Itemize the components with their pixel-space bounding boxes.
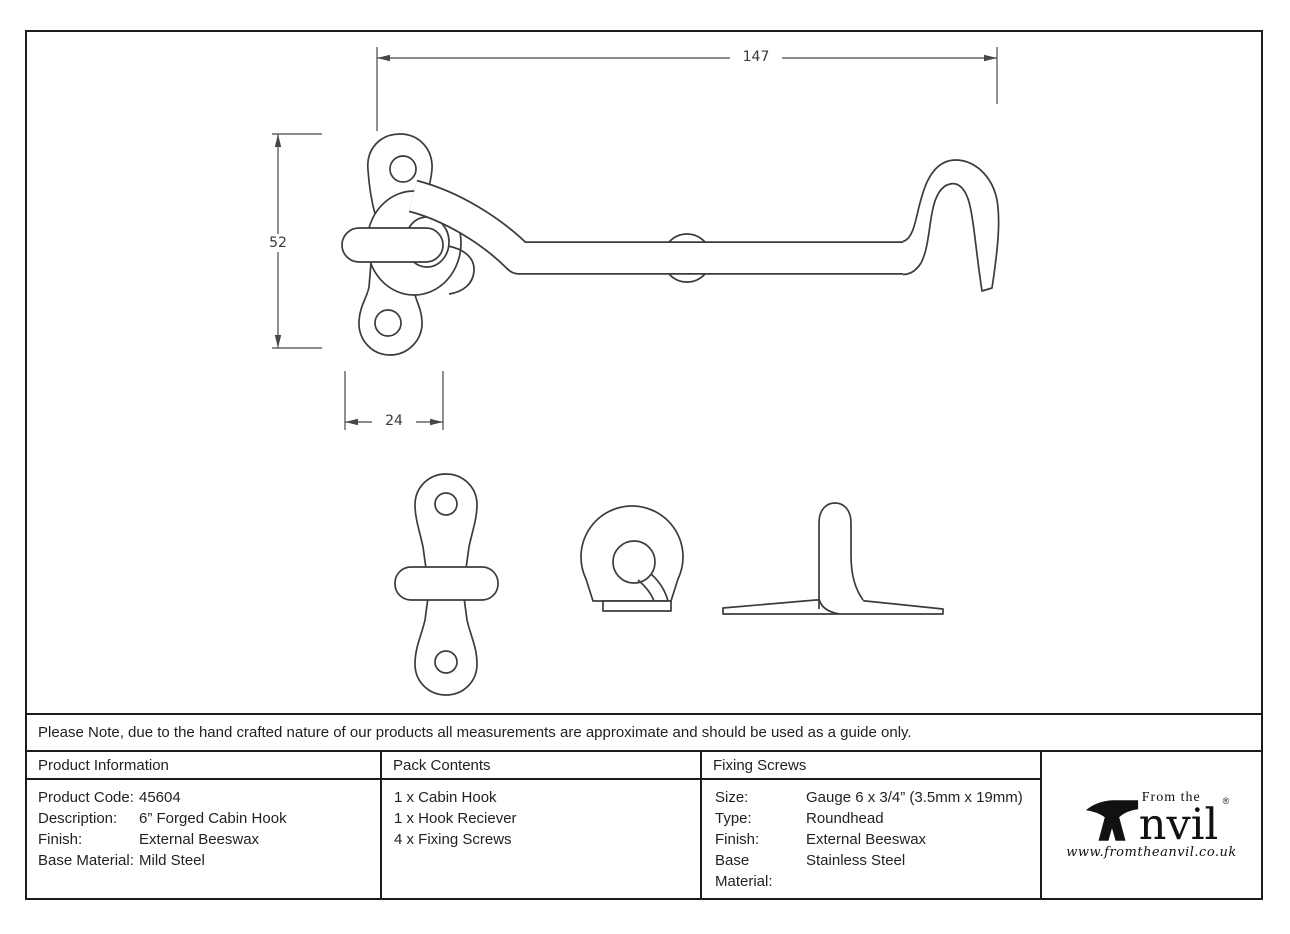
- row-label: Finish:: [702, 829, 806, 850]
- dim-label-height: 52: [256, 234, 300, 252]
- row-value: Roundhead: [806, 808, 1040, 829]
- product-information-header: Product Information: [27, 752, 380, 780]
- detail-view-eye: [581, 506, 683, 611]
- row-value: 6” Forged Cabin Hook: [139, 808, 380, 829]
- note-text: Please Note, due to the hand crafted nat…: [38, 724, 912, 741]
- table-row: Size: Gauge 6 x 3/4” (3.5mm x 19mm): [702, 787, 1040, 808]
- row-label: Base Material:: [702, 850, 806, 892]
- cabin-hook-drawing: [27, 32, 1261, 713]
- detail-view-plate: [395, 474, 498, 695]
- sheet-frame: 147 52 24 Please Note, due to the hand c…: [25, 30, 1263, 900]
- row-label: Product Code:: [27, 787, 139, 808]
- list-item: 4 x Fixing Screws: [382, 829, 700, 850]
- dim-label-length: 147: [730, 48, 782, 66]
- dimension-147: [377, 47, 997, 131]
- hook-rod-fill: [413, 196, 903, 258]
- row-value: External Beeswax: [806, 829, 1040, 850]
- row-label: Description:: [27, 808, 139, 829]
- logo-prefix: From the: [1142, 790, 1201, 806]
- info-table: Product Information Product Code: 45604 …: [27, 750, 1261, 898]
- table-row: Type: Roundhead: [702, 808, 1040, 829]
- row-label: Base Material:: [27, 850, 139, 871]
- brand-column: From the nvil ® www.fromtheanvil.co.uk: [1040, 752, 1261, 898]
- row-value: Gauge 6 x 3/4” (3.5mm x 19mm): [806, 787, 1040, 808]
- hook-tip: [903, 160, 999, 291]
- row-value: External Beeswax: [139, 829, 380, 850]
- table-row: Product Code: 45604: [27, 787, 380, 808]
- from-the-anvil-logo: From the nvil ® www.fromtheanvil.co.uk: [1066, 790, 1237, 861]
- registered-mark: ®: [1223, 796, 1230, 806]
- table-row: Description: 6” Forged Cabin Hook: [27, 808, 380, 829]
- pack-contents-column: Pack Contents 1 x Cabin Hook 1 x Hook Re…: [380, 752, 700, 898]
- row-value: Stainless Steel: [806, 850, 1040, 892]
- list-item: 1 x Cabin Hook: [382, 787, 700, 808]
- spec-sheet-page: 147 52 24 Please Note, due to the hand c…: [0, 0, 1290, 934]
- row-value: Mild Steel: [139, 850, 380, 871]
- row-label: Type:: [702, 808, 806, 829]
- row-value: 45604: [139, 787, 380, 808]
- measurement-note: Please Note, due to the hand crafted nat…: [27, 713, 1261, 750]
- anvil-icon: [1085, 796, 1139, 844]
- table-row: Finish: External Beeswax: [702, 829, 1040, 850]
- table-row: Finish: External Beeswax: [27, 829, 380, 850]
- list-item: 1 x Hook Reciever: [382, 808, 700, 829]
- table-row: Base Material: Stainless Steel: [702, 850, 1040, 892]
- fixing-screws-column: Fixing Screws Size: Gauge 6 x 3/4” (3.5m…: [700, 752, 1040, 898]
- plate-screw-hole-top: [390, 156, 416, 182]
- row-label: Size:: [702, 787, 806, 808]
- logo-name: nvil: [1139, 800, 1219, 850]
- toggle-bar: [342, 228, 443, 262]
- plate-screw-hole-bottom: [375, 310, 401, 336]
- fixing-screws-header: Fixing Screws: [702, 752, 1040, 780]
- technical-drawing-area: 147 52 24: [27, 32, 1261, 713]
- table-row: Base Material: Mild Steel: [27, 850, 380, 871]
- product-information-column: Product Information Product Code: 45604 …: [27, 752, 380, 898]
- main-assembly-view: [342, 134, 999, 355]
- detail-view-side: [723, 503, 943, 614]
- dim-label-width: 24: [372, 412, 416, 430]
- pack-contents-header: Pack Contents: [382, 752, 700, 780]
- row-label: Finish:: [27, 829, 139, 850]
